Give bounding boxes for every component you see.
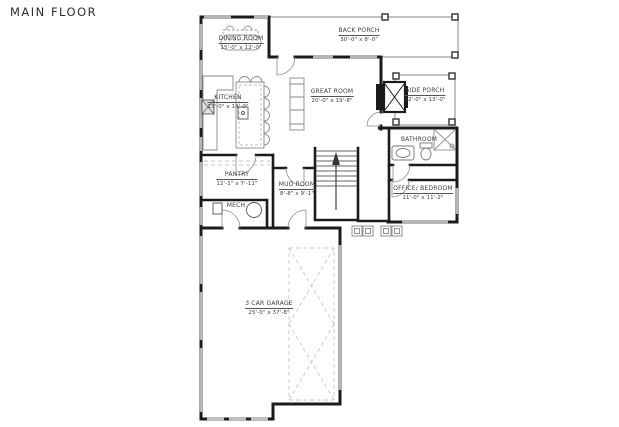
room-label-side-porch: SIDE PORCH 12'-0" x 13'-0" [404, 87, 445, 104]
floor-plan-canvas: MAIN FLOOR [0, 0, 619, 427]
room-label-kitchen: KITCHEN 13'-0" x 14'-0" [207, 94, 248, 111]
room-label-office-bedroom: OFFICE/ BEDROOM 11'-0" x 11'-2" [393, 185, 453, 202]
room-label-garage: 3 CAR GARAGE 25'-0" x 37'-8" [245, 300, 293, 317]
toilet-symbol [420, 143, 432, 160]
window-segments [201, 17, 457, 412]
shower-symbol [434, 129, 456, 150]
stairs-symbol [317, 151, 357, 210]
pantry-shelf-lines [204, 161, 270, 165]
floor-plan-drawing [0, 0, 619, 427]
sofa-symbol [290, 78, 304, 130]
exterior-walls [201, 17, 457, 419]
room-label-mech: MECH [227, 202, 245, 209]
room-label-back-porch: BACK PORCH 30'-0" x 8'-0" [338, 27, 379, 44]
kitchen-island [236, 77, 270, 149]
room-label-great-room: GREAT ROOM 20'-0" x 19'-8" [311, 88, 354, 105]
room-label-mud-room: MUD ROOM 8'-8" x 9'-1" [279, 181, 316, 198]
vanity-sink-symbol [392, 146, 414, 160]
fireplace-symbol [376, 82, 408, 112]
cubby-symbols [352, 226, 402, 236]
room-label-pantry: PANTRY 12'-1" x 7'-11" [216, 171, 257, 188]
room-label-dining: DINING ROOM 15'-0" x 12'-0" [219, 35, 264, 52]
garage-dashed-overlay [289, 248, 334, 400]
room-label-bathroom: BATHROOM [401, 136, 437, 143]
